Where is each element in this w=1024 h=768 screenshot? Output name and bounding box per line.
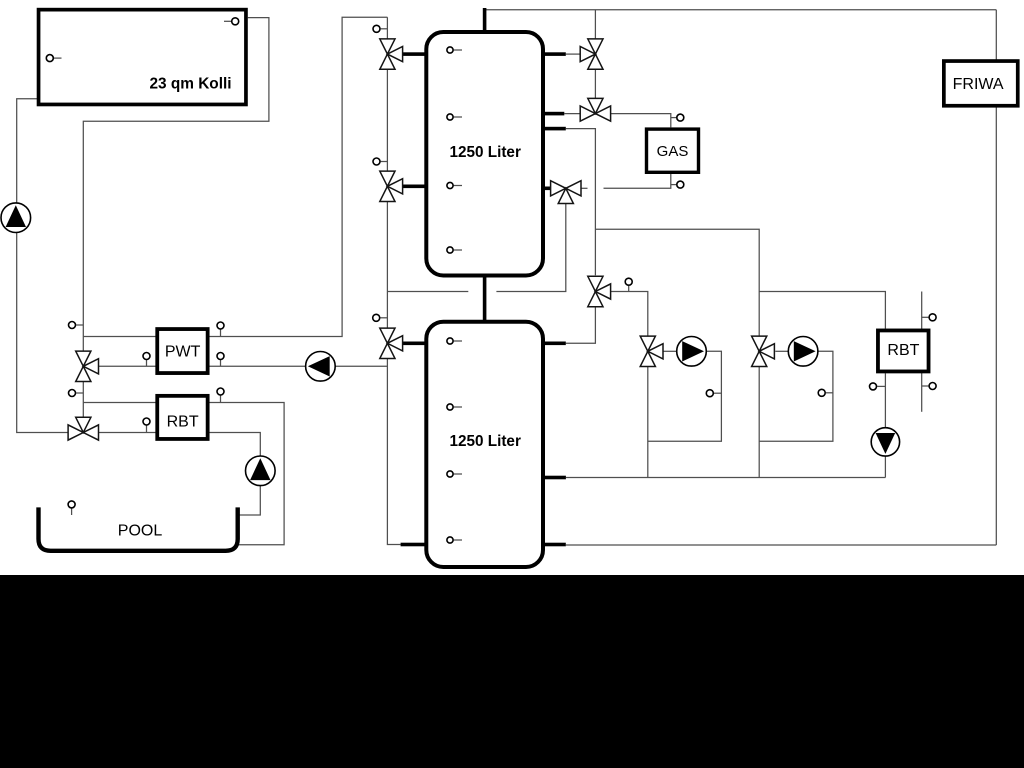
svg-text:23 qm Kolli: 23 qm Kolli	[149, 75, 231, 92]
svg-text:1250 Liter: 1250 Liter	[449, 433, 520, 450]
svg-text:RBT: RBT	[167, 414, 199, 431]
svg-text:1250 Liter: 1250 Liter	[449, 144, 520, 161]
svg-text:RBT: RBT	[887, 342, 919, 359]
svg-text:PWT: PWT	[165, 343, 201, 360]
svg-text:GAS: GAS	[657, 143, 689, 160]
svg-text:FRIWA: FRIWA	[953, 76, 1004, 93]
svg-text:POOL: POOL	[118, 522, 163, 539]
